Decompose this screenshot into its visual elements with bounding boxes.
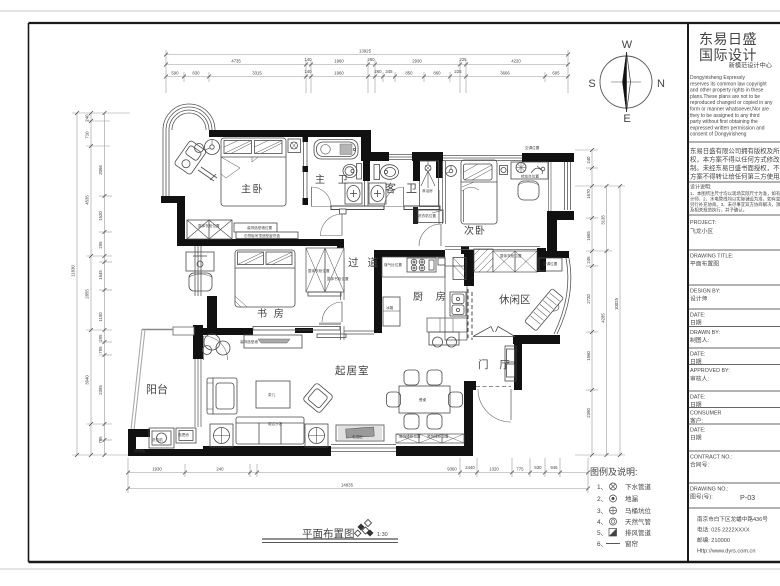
svg-text:空调位置: 空调位置	[543, 261, 558, 266]
svg-text:N: N	[657, 78, 665, 90]
svg-text:图例及说明:: 图例及说明:	[590, 466, 638, 477]
svg-text:260: 260	[374, 69, 382, 74]
svg-text:东易日盛有限公司拥有版权及所有: 东易日盛有限公司拥有版权及所有	[690, 146, 780, 155]
svg-text:225: 225	[459, 57, 467, 62]
svg-text:245: 245	[586, 256, 591, 264]
svg-text:10025: 10025	[614, 297, 619, 310]
svg-text:门 厅: 门 厅	[478, 358, 514, 371]
svg-text:日期: 日期	[690, 320, 702, 327]
svg-text:新模范设计中心: 新模范设计中心	[729, 62, 772, 70]
svg-text:厨 房: 厨 房	[413, 290, 451, 303]
svg-text:775: 775	[516, 467, 524, 472]
svg-text:2855: 2855	[85, 289, 90, 299]
svg-text:reproduced changed or copied i: reproduced changed or copied in any	[690, 100, 773, 106]
svg-text:form or manner whatsoever,Nor: form or manner whatsoever,Nor are	[690, 107, 769, 113]
svg-text:客户:: 客户:	[690, 417, 704, 425]
svg-text:plans.These plans are not to b: plans.These plans are not to be	[690, 94, 760, 100]
svg-text:装饰矮柜位置: 装饰矮柜位置	[399, 434, 421, 439]
svg-text:起居室: 起居室	[335, 364, 370, 377]
svg-text:淋浴房: 淋浴房	[422, 188, 433, 193]
svg-text:石膏板吊顶造型窗帘盒: 石膏板吊顶造型窗帘盒	[244, 233, 280, 238]
svg-text:制图人:: 制图人:	[690, 336, 709, 344]
svg-text:DATE:: DATE:	[690, 395, 705, 401]
svg-text:APPROVED BY:: APPROVED BY:	[690, 368, 730, 374]
svg-text:2、: 2、	[597, 496, 607, 503]
svg-text:795: 795	[98, 436, 103, 444]
svg-text:排风管道: 排风管道	[625, 528, 652, 537]
svg-text:345: 345	[385, 69, 393, 74]
svg-text:DATE:: DATE:	[690, 352, 705, 358]
svg-text:设计说明:: 设计说明:	[690, 184, 711, 191]
svg-text:整体衣柜位置: 整体衣柜位置	[198, 223, 220, 228]
svg-text:830: 830	[192, 71, 200, 76]
svg-text:装饰造型墙位置: 装饰造型墙位置	[247, 225, 273, 230]
svg-text:飞龙小区: 飞龙小区	[690, 227, 713, 235]
svg-text:945: 945	[550, 465, 558, 470]
svg-text:制。未经东易日盛书面授权，不: 制。未经东易日盛书面授权，不	[690, 163, 780, 172]
svg-text:795: 795	[98, 346, 103, 354]
svg-text:reserves its common law copyri: reserves its common law copyright	[690, 81, 767, 87]
svg-text:140: 140	[304, 57, 312, 62]
svg-text:140: 140	[304, 69, 312, 74]
svg-text:休闲区: 休闲区	[499, 293, 531, 306]
svg-text:下水管道: 下水管道	[625, 482, 652, 491]
svg-text:日期: 日期	[690, 435, 702, 442]
svg-text:空调位置: 空调位置	[525, 145, 540, 150]
svg-text:1:30: 1:30	[377, 532, 388, 538]
svg-text:530: 530	[534, 465, 542, 470]
svg-text:consent of Dongyirisheng: consent of Dongyirisheng	[690, 132, 747, 138]
svg-text:2390: 2390	[586, 408, 591, 418]
svg-text:餐桌: 餐桌	[419, 397, 427, 402]
svg-text:组合沙发: 组合沙发	[268, 421, 283, 426]
svg-text:E: E	[623, 113, 630, 125]
svg-text:窗帘: 窗帘	[625, 539, 639, 548]
svg-text:审核人:: 审核人:	[690, 375, 709, 383]
svg-text:260: 260	[367, 57, 375, 62]
svg-text:3、: 3、	[597, 508, 607, 515]
svg-text:图号(号):: 图号(号):	[690, 493, 713, 501]
svg-text:4220: 4220	[511, 59, 521, 64]
svg-text:1665: 1665	[586, 231, 591, 241]
svg-text:DESIGN BY:: DESIGN BY:	[690, 289, 721, 295]
svg-text:天然气管: 天然气管	[625, 517, 652, 526]
svg-text:南京市白下区龙蟠中路436号: 南京市白下区龙蟠中路436号	[697, 515, 768, 523]
svg-text:冰箱: 冰箱	[386, 305, 394, 310]
svg-text:梳妆台位置: 梳妆台位置	[521, 174, 539, 179]
svg-text:拖把池: 拖把池	[178, 432, 189, 437]
svg-text:party without first obtaining: party without first obtaining the	[690, 119, 758, 125]
svg-text:DRAWING TITLE:: DRAWING TITLE:	[690, 254, 733, 260]
svg-text:1190: 1190	[98, 312, 103, 322]
svg-text:整体衣柜位置: 整体衣柜位置	[308, 268, 330, 273]
svg-text:洗衣机: 洗衣机	[152, 437, 163, 442]
svg-text:CONTRACT NO.:: CONTRACT NO.:	[690, 455, 732, 461]
svg-text:605: 605	[552, 71, 560, 76]
svg-text:整体衣柜位置: 整体衣柜位置	[500, 253, 522, 258]
svg-text:地漏: 地漏	[625, 494, 639, 503]
svg-text:平面布置图: 平面布置图	[690, 260, 719, 268]
svg-text:及相关规范执行，并予确认。: 及相关规范执行，并予确认。	[690, 207, 747, 214]
svg-text:东易日盛: 东易日盛	[699, 32, 757, 48]
svg-text:3940: 3940	[85, 375, 90, 385]
svg-text:DRAWING NO.:: DRAWING NO.:	[690, 487, 728, 493]
svg-text:1560: 1560	[586, 351, 591, 361]
svg-text:洗衣机位置: 洗衣机位置	[418, 213, 436, 218]
svg-text:11830: 11830	[71, 265, 76, 277]
svg-text:DATE:: DATE:	[690, 313, 705, 319]
svg-text:邮编: 210000: 邮编: 210000	[697, 536, 730, 544]
svg-text:2395: 2395	[98, 385, 103, 395]
svg-text:4285: 4285	[601, 313, 606, 323]
svg-text:DRAWN BY:: DRAWN BY:	[690, 330, 720, 336]
svg-text:240: 240	[586, 156, 591, 164]
svg-text:合同号:: 合同号:	[690, 461, 709, 469]
svg-text:权，本方案不得以任何方式修改复: 权，本方案不得以任何方式修改复	[690, 155, 780, 164]
svg-text:CONSUMER: CONSUMER	[690, 411, 722, 417]
svg-text:4、: 4、	[597, 519, 607, 526]
svg-text:295: 295	[98, 241, 103, 249]
svg-text:2066: 2066	[98, 165, 103, 175]
svg-text:1670: 1670	[586, 189, 591, 199]
svg-text:P-03: P-03	[740, 493, 755, 502]
svg-text:S: S	[588, 78, 595, 90]
svg-text:225: 225	[454, 69, 462, 74]
svg-text:茶几: 茶几	[268, 392, 276, 397]
svg-text:设计师: 设计师	[690, 295, 708, 303]
svg-text:洗衣池: 洗衣池	[134, 448, 145, 453]
svg-text:过 道: 过 道	[348, 256, 381, 269]
svg-text:they to be assigned to any th: they to be assigned to any third	[690, 113, 760, 119]
svg-text:240: 240	[85, 114, 90, 122]
svg-text:1960: 1960	[334, 71, 344, 76]
svg-text:阳台: 阳台	[146, 382, 168, 396]
svg-text:书 房: 书 房	[257, 307, 286, 320]
svg-text:煤气灶位置: 煤气灶位置	[384, 262, 402, 267]
svg-text:4535: 4535	[85, 195, 90, 205]
svg-text:4735: 4735	[231, 59, 241, 64]
svg-text:590: 590	[171, 71, 179, 76]
svg-text:1、: 1、	[597, 484, 607, 491]
svg-text:客 卫: 客 卫	[385, 181, 421, 195]
svg-text:14835: 14835	[341, 483, 354, 488]
svg-text:and other property rights in t: and other property rights in these	[690, 88, 764, 94]
svg-text:装饰造型墙: 装饰造型墙	[240, 339, 258, 344]
svg-text:DATE:: DATE:	[690, 428, 705, 434]
svg-text:主 卫: 主 卫	[315, 174, 353, 186]
svg-text:295: 295	[98, 334, 103, 342]
svg-text:PROJECT:: PROJECT:	[690, 220, 716, 226]
svg-text:2720: 2720	[586, 294, 591, 304]
svg-text:马桶坑位: 马桶坑位	[625, 506, 652, 515]
svg-text:1520: 1520	[98, 211, 103, 221]
svg-text:3135: 3135	[601, 215, 606, 225]
svg-text:1930: 1930	[152, 467, 162, 472]
svg-text:3315: 3315	[252, 71, 262, 76]
svg-text:W: W	[622, 39, 633, 51]
svg-text:2930: 2930	[412, 59, 422, 64]
svg-text:5、: 5、	[597, 530, 607, 537]
svg-text:整体书柜位置: 整体书柜位置	[327, 276, 349, 281]
svg-text:1320: 1320	[489, 467, 499, 472]
svg-text:1960: 1960	[334, 59, 344, 64]
svg-text:expressed written permission a: expressed written permission and	[690, 125, 765, 131]
svg-text:Http://www.dyrs.com.cn: Http://www.dyrs.com.cn	[697, 549, 755, 555]
svg-text:Dongyirisheng Expressly: Dongyirisheng Expressly	[690, 75, 746, 81]
svg-text:860: 860	[433, 71, 441, 76]
svg-text:方案不得转让给任何第三方使用。: 方案不得转让给任何第三方使用。	[690, 172, 780, 181]
svg-text:装饰矮柜位置: 装饰矮柜位置	[427, 434, 449, 439]
svg-text:1645: 1645	[98, 270, 103, 280]
svg-text:6、: 6、	[597, 541, 607, 548]
svg-text:3666: 3666	[500, 71, 510, 76]
svg-text:主卧: 主卧	[241, 183, 264, 196]
svg-text:2440: 2440	[465, 465, 475, 470]
svg-text:次卧: 次卧	[464, 224, 486, 237]
svg-text:850: 850	[405, 71, 413, 76]
svg-text:平面布置图: 平面布置图	[302, 528, 355, 540]
svg-text:9360: 9360	[447, 467, 457, 472]
svg-text:电话: 025 2222XXXX: 电话: 025 2222XXXX	[697, 526, 750, 534]
svg-text:240: 240	[216, 467, 224, 472]
svg-text:710: 710	[85, 131, 90, 139]
svg-text:电视柜: 电视柜	[352, 434, 363, 439]
svg-text:13925: 13925	[359, 49, 372, 54]
